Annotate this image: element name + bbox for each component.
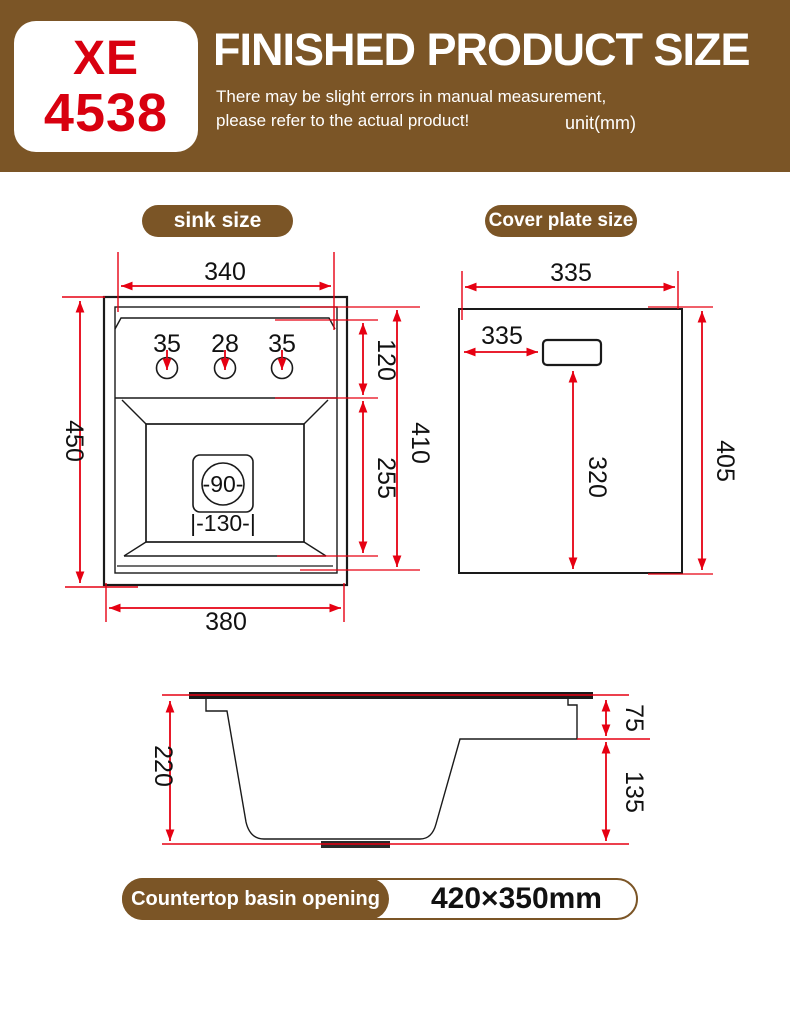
- cover-handle: [543, 340, 601, 365]
- sink-side-view: 220 75 135: [149, 692, 650, 848]
- product-size-sheet: XE 4538 FINISHED PRODUCT SIZE There may …: [0, 0, 790, 1010]
- side-lower-drop-dim: 135: [620, 771, 648, 813]
- side-rim-drop-dim: 75: [620, 704, 648, 732]
- hole2-dim: 28: [211, 330, 239, 358]
- countertop-opening-bar: Countertop basin opening 420×350mm: [122, 878, 638, 920]
- dimension-drawing: 35 28 35 -90- |-130-| 340 450 380: [0, 0, 790, 1010]
- countertop-opening-value: 420×350mm: [404, 880, 629, 918]
- cover-handle-offset-dim: 335: [481, 322, 523, 350]
- cover-width-dim: 335: [550, 259, 592, 287]
- sink-height-dim: 450: [60, 420, 88, 462]
- countertop-opening-label: Countertop basin opening: [122, 878, 389, 920]
- sink-basin-height-dim: 255: [372, 457, 400, 499]
- drain-diameter-dim: -90-: [203, 471, 244, 497]
- side-depth-dim: 220: [149, 745, 177, 787]
- hole3-dim: 35: [268, 330, 296, 358]
- sink-top-width-dim: 340: [204, 258, 246, 286]
- sink-dimensions: 340 450 380 120 255 410: [60, 252, 434, 636]
- sink-bottom-width-dim: 380: [205, 608, 247, 636]
- cover-handle-to-bottom-dim: 320: [583, 456, 611, 498]
- hole1-dim: 35: [153, 330, 181, 358]
- cover-height-dim: 405: [711, 440, 739, 482]
- drain-offset-dim: |-130-|: [190, 510, 256, 536]
- sink-top-view: 35 28 35 -90- |-130-|: [104, 297, 347, 585]
- cover-plate-view: 335 335 320 405: [459, 259, 739, 574]
- sink-deck-height-dim: 120: [372, 339, 400, 381]
- sink-inner-height-dim: 410: [406, 422, 434, 464]
